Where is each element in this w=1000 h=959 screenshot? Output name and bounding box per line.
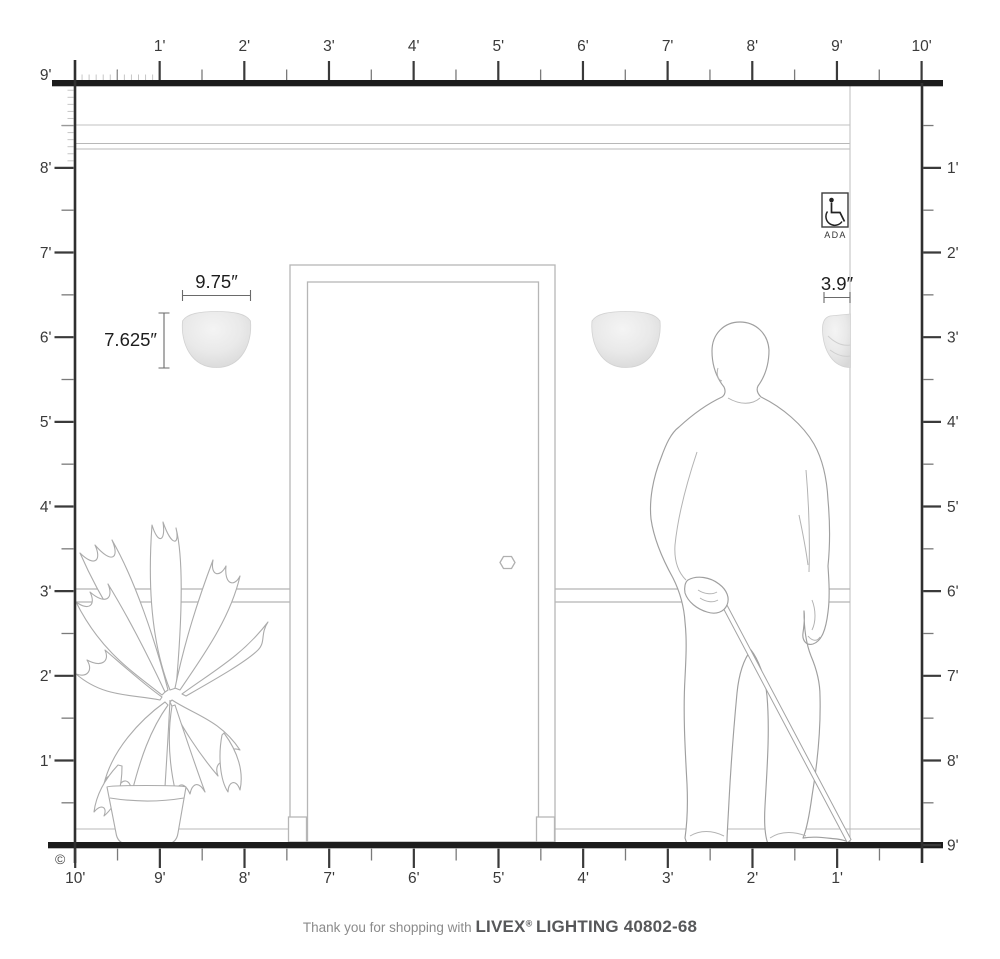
plant [76, 522, 268, 845]
bottom-ruler-label: 1' [831, 870, 843, 887]
footer-note: Thank you for shopping with LIVEX® LIGHT… [0, 917, 1000, 937]
top-ruler-label: 4' [408, 38, 420, 55]
top-ruler-label: 6' [577, 38, 589, 55]
sconce-front-left [182, 312, 250, 368]
left-ruler-label: 6' [40, 329, 52, 346]
ceiling-line [52, 80, 943, 86]
right-ruler-label: 5' [947, 499, 959, 516]
bottom-ruler-label: 6' [408, 870, 420, 887]
left-ruler-label: 5' [40, 414, 52, 431]
sconce-profile-right [822, 314, 850, 368]
bottom-ruler-label: 3' [662, 870, 674, 887]
right-ruler-label: 4' [947, 414, 959, 431]
width-dimension-label: 9.75″ [195, 271, 238, 292]
footer-prefix: Thank you for shopping with [303, 920, 472, 935]
right-ruler-label: 6' [947, 583, 959, 600]
right-ruler-label: 3' [947, 329, 959, 346]
person-outline [650, 322, 848, 844]
bottom-ruler-label: 10' [65, 870, 85, 887]
left-ruler-line [74, 60, 77, 863]
left-ruler-label: 7' [40, 245, 52, 262]
door-frame [290, 265, 555, 842]
door-knob [500, 557, 515, 569]
left-ruler-label: 9' [40, 67, 52, 84]
copyright-symbol: © [55, 851, 65, 867]
bottom-ruler-label: 2' [747, 870, 759, 887]
right-ruler-label: 9' [947, 837, 959, 854]
footer-brand: LIVEX [475, 917, 525, 936]
bottom-ruler-label: 8' [239, 870, 251, 887]
bottom-ruler-label: 7' [323, 870, 335, 887]
right-ruler-label: 2' [947, 245, 959, 262]
left-ruler-label: 3' [40, 583, 52, 600]
height-dim-line [159, 313, 170, 368]
top-ruler-label: 9' [831, 38, 843, 55]
plant-pot [107, 786, 186, 846]
person-silhouette [650, 322, 851, 844]
floor-line [48, 842, 943, 848]
bottom-ruler-label: 9' [154, 870, 166, 887]
right-ruler-line [921, 83, 924, 863]
diagram-canvas: 9.75″ 7.625″ 3.9″ ADA [0, 0, 1000, 959]
elevation-diagram: 9.75″ 7.625″ 3.9″ ADA [0, 0, 1000, 959]
sconce-front-middle [592, 312, 660, 368]
height-dimension-label: 7.625″ [104, 329, 157, 350]
left-ruler-label: 1' [40, 753, 52, 770]
ada-label: ADA [824, 230, 846, 240]
door-plinth-left [289, 817, 307, 842]
door-plinth-right [537, 817, 555, 842]
right-ruler-label: 8' [947, 753, 959, 770]
top-ruler-label: 8' [746, 38, 758, 55]
registered-mark: ® [526, 919, 533, 929]
left-ruler-label: 8' [40, 160, 52, 177]
bottom-ruler-label: 4' [577, 870, 589, 887]
left-ruler-label: 2' [40, 668, 52, 685]
bottom-ruler-label: 5' [493, 870, 505, 887]
top-ruler-label: 2' [239, 38, 251, 55]
door [289, 265, 556, 842]
right-ruler-label: 7' [947, 668, 959, 685]
top-ruler-label: 10' [911, 38, 931, 55]
left-ruler-label: 4' [40, 499, 52, 516]
depth-dimension-label: 3.9″ [821, 273, 854, 294]
top-ruler-label: 1' [154, 38, 166, 55]
right-ruler-label: 1' [947, 160, 959, 177]
top-ruler-label: 7' [662, 38, 674, 55]
ada-badge: ADA [822, 193, 848, 240]
top-ruler-label: 5' [493, 38, 505, 55]
top-ruler-label: 3' [323, 38, 335, 55]
footer-product: LIGHTING 40802-68 [536, 917, 697, 936]
